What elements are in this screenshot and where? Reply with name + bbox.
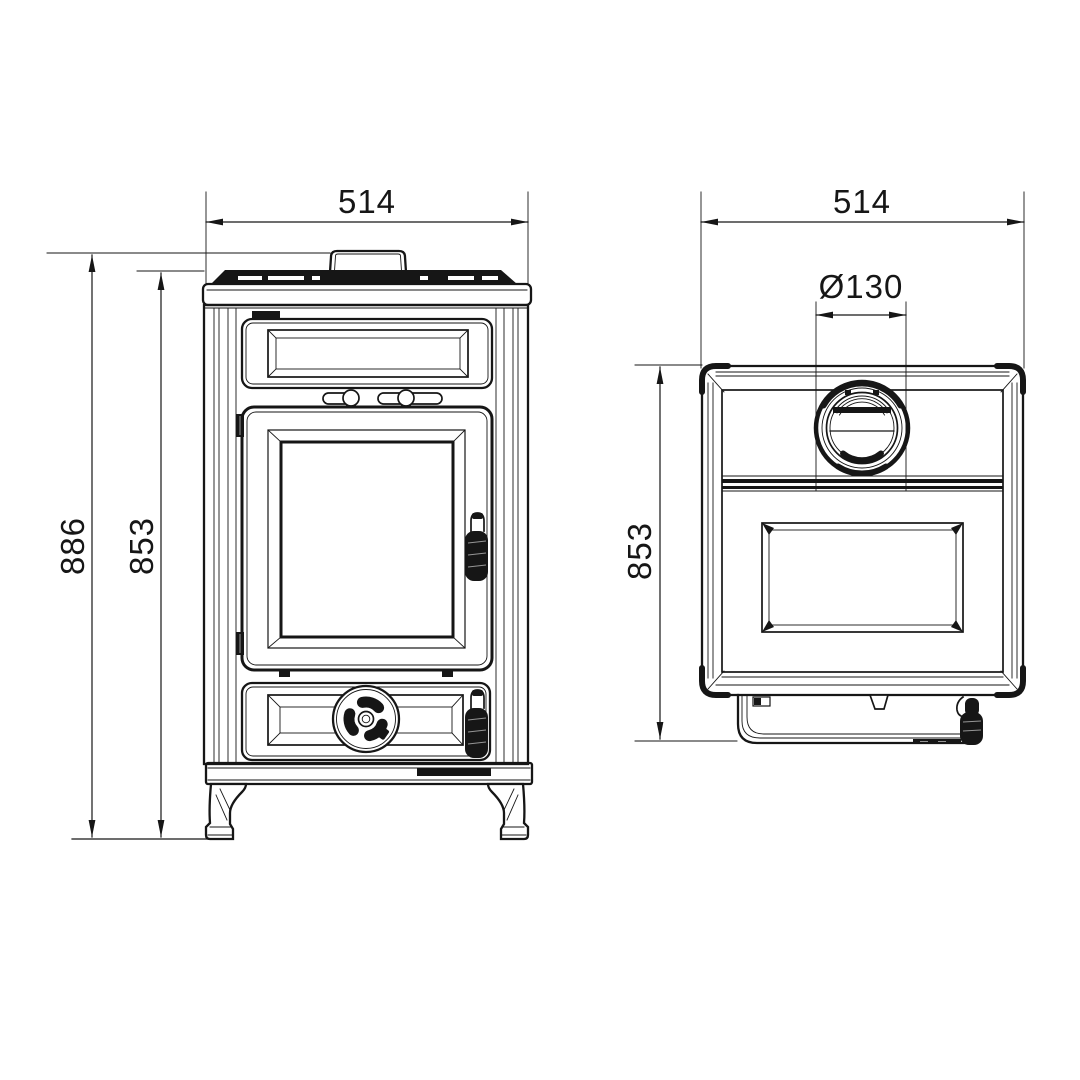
technical-drawing: 514 886 853	[0, 0, 1080, 1080]
ash-door-handle	[465, 690, 488, 758]
cook-recess	[762, 523, 963, 632]
flue-baffle	[833, 407, 891, 413]
door-glass	[268, 430, 465, 648]
door-hinge-bottom	[236, 632, 244, 655]
flue-circle	[816, 382, 908, 474]
leg-left	[206, 784, 246, 839]
top-height-label: 853	[621, 522, 658, 580]
plate-divider-band	[722, 476, 1003, 491]
door-band	[738, 695, 983, 745]
flue-diameter-label: Ø130	[819, 268, 904, 305]
divider-mark-right	[442, 671, 453, 677]
door-hinge-top	[236, 414, 244, 437]
base-plinth	[206, 763, 532, 784]
front-body-height-label: 853	[123, 517, 160, 575]
front-overall-height-dimension: 886	[47, 253, 330, 837]
flue-collar	[330, 251, 406, 272]
divider-mark-left	[279, 671, 290, 677]
front-overall-height-label: 886	[54, 517, 91, 575]
air-slider-left	[323, 390, 359, 406]
ash-air-wheel	[333, 686, 399, 752]
fire-door	[236, 407, 492, 670]
front-view: 514 886 853	[47, 183, 532, 839]
top-view: 514 Ø130 853	[621, 183, 1024, 745]
top-plate-rim	[203, 284, 531, 305]
front-body-height-dimension: 853	[123, 271, 204, 837]
top-plate	[203, 270, 531, 305]
upper-panel	[242, 319, 492, 388]
drawing-page: 514 886 853	[0, 0, 1080, 1080]
door-handle	[465, 513, 488, 581]
latch-tab-top	[870, 695, 888, 709]
front-width-dimension: 514	[206, 183, 528, 283]
front-width-label: 514	[338, 183, 396, 220]
leg-right	[488, 784, 528, 839]
top-width-label: 514	[833, 183, 891, 220]
top-view-handle	[957, 697, 983, 745]
plinth-vent	[417, 768, 491, 776]
air-slider-right	[378, 390, 442, 406]
